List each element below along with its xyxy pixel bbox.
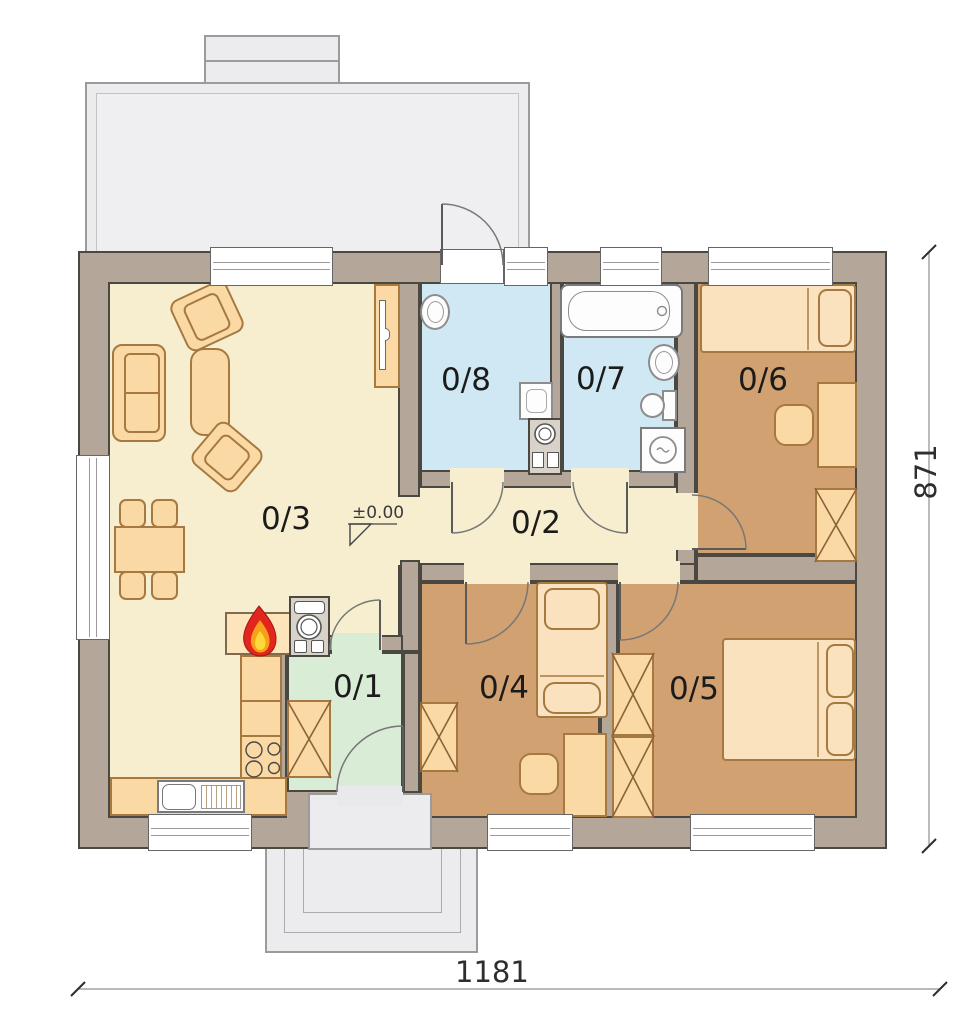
room-label-0-4: 0/4 bbox=[479, 670, 529, 706]
dimension-width: 1181 bbox=[455, 955, 529, 989]
room-label-0-1: 0/1 bbox=[333, 669, 383, 705]
bolster-0-4 bbox=[543, 682, 601, 714]
washbasin-bath-inner bbox=[655, 351, 673, 374]
dining-chair-2 bbox=[151, 499, 178, 528]
room-label-0-7: 0/7 bbox=[576, 361, 626, 397]
window-bedroom5-bottom bbox=[690, 814, 815, 851]
boiler-switch-2 bbox=[311, 640, 324, 653]
kitchen-drainboard bbox=[201, 785, 241, 809]
water-heater-inner bbox=[526, 389, 547, 413]
sofa-cushion-divider bbox=[125, 392, 159, 394]
toilet-bowl bbox=[640, 393, 665, 418]
room-label-0-3: 0/3 bbox=[261, 501, 311, 537]
room-label-0-2: 0/2 bbox=[511, 505, 561, 541]
dining-table bbox=[114, 526, 185, 573]
kitchen-column-divider-1 bbox=[242, 700, 280, 702]
floor-plan: 0/3 0/2 0/8 0/7 0/6 0/1 0/4 0/5 ±0.00 11… bbox=[0, 0, 953, 1024]
wall-living-hall-lower bbox=[400, 560, 420, 652]
wall-entry-right bbox=[403, 652, 420, 793]
window-bedroom4-bottom bbox=[487, 814, 573, 851]
wardrobe-0-4 bbox=[420, 702, 458, 772]
wardrobe-entry bbox=[287, 700, 331, 778]
room-label-0-5: 0/5 bbox=[669, 671, 719, 707]
vent-shaft-sq1 bbox=[532, 452, 544, 468]
dining-chair-1 bbox=[119, 499, 146, 528]
door-gap-bedroom6 bbox=[674, 493, 698, 550]
window-bath-top bbox=[600, 247, 662, 286]
kitchen-sink-basin bbox=[162, 784, 196, 810]
door-gap-bedroom5 bbox=[618, 561, 680, 584]
pillow-0-4 bbox=[544, 588, 600, 630]
chair-0-4 bbox=[519, 753, 559, 795]
door-gap-terrace bbox=[440, 249, 504, 284]
dining-chair-3 bbox=[119, 571, 146, 600]
chair-0-6 bbox=[774, 404, 814, 446]
wardrobe-0-6 bbox=[815, 488, 857, 562]
door-gap-bath-hall bbox=[571, 468, 629, 490]
wardrobe-0-5-b bbox=[612, 736, 654, 818]
dimension-height: 871 bbox=[909, 444, 943, 499]
window-living-left bbox=[76, 455, 110, 640]
washbasin-utility-inner bbox=[427, 301, 444, 323]
terrace-inner-line bbox=[96, 93, 519, 265]
vent-shaft-sq2 bbox=[547, 452, 559, 468]
pillow-0-6 bbox=[818, 289, 852, 347]
window-living-top bbox=[210, 247, 333, 286]
level-mark-text: ±0.00 bbox=[352, 503, 404, 523]
chimney-block bbox=[204, 35, 340, 62]
room-label-0-6: 0/6 bbox=[738, 362, 788, 398]
pillow-0-5-b bbox=[826, 702, 854, 756]
desk-0-6 bbox=[817, 382, 857, 468]
bathtub-inner bbox=[568, 291, 670, 331]
wall-living-utility bbox=[398, 282, 420, 497]
boiler-top-panel bbox=[294, 601, 325, 614]
dining-chair-4 bbox=[151, 571, 178, 600]
porch-step-2 bbox=[303, 845, 442, 913]
wardrobe-0-5-a bbox=[612, 653, 654, 736]
pillow-0-5-a bbox=[826, 644, 854, 698]
door-gap-entry-living bbox=[332, 633, 382, 654]
window-utility-top bbox=[504, 247, 548, 286]
desk-0-4 bbox=[563, 733, 607, 817]
room-label-0-8: 0/8 bbox=[441, 362, 491, 398]
door-gap-utility-hall bbox=[450, 468, 504, 490]
fireplace-hearth bbox=[225, 612, 291, 655]
washing-machine bbox=[640, 427, 686, 473]
window-kitchen-bottom bbox=[148, 814, 252, 851]
kitchen-column-divider-2 bbox=[242, 735, 280, 737]
door-gap-entrance bbox=[337, 786, 403, 806]
boiler-switch-1 bbox=[294, 640, 307, 653]
kitchen-column bbox=[240, 655, 282, 779]
window-bedroom6-top bbox=[708, 247, 833, 286]
door-gap-bedroom4 bbox=[464, 561, 530, 584]
